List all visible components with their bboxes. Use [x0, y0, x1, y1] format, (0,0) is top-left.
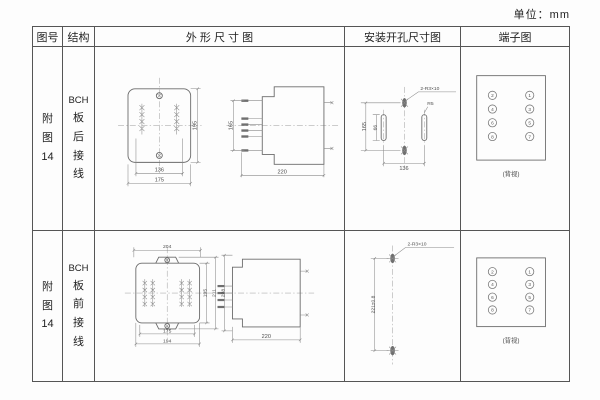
dim-slot-length: 66: [373, 125, 379, 131]
figure-char: 附: [42, 278, 53, 297]
header-mounting: 安装开孔尺寸图: [345, 27, 461, 47]
dim-front-width-outer: 175: [155, 177, 164, 183]
structure-char: 后: [73, 128, 84, 147]
structure-char: 板: [73, 277, 84, 296]
terminal-number: 7: [528, 308, 531, 313]
terminal-number: 6: [491, 295, 494, 300]
terminal-number: 3: [528, 107, 531, 112]
terminal-number: 5: [528, 295, 531, 300]
mounting-callout: 2-R3×10: [407, 242, 426, 248]
structure-char: BCH: [68, 261, 88, 277]
structure-char: 前: [73, 295, 84, 314]
dim-side-height: 165: [228, 121, 234, 130]
terminal-number: 1: [528, 269, 531, 274]
terminal-number: 8: [491, 134, 494, 139]
structure-cell-row1: BCH 板 后 接 线: [63, 47, 95, 231]
figure-char: 图: [42, 129, 53, 148]
terminal-number: 4: [491, 282, 494, 287]
terminal-pins: 2 4 6 8 1 3 5 7: [488, 91, 534, 140]
structure-char: 线: [73, 165, 84, 184]
terminal-pins: 2 4 6 8 1 3 5 7: [488, 268, 534, 315]
terminal-number: 8: [491, 308, 494, 313]
figure-char: 14: [41, 148, 53, 167]
figure-char: 图: [42, 297, 53, 316]
terminal-diagram-row1: 2 4 6 8 1 3 5 7 (背视): [461, 47, 569, 231]
dim-mounting-height: 165: [362, 122, 368, 131]
terminal-diagram-row2: 2 4 6 8 1 3 5 7 (背视): [461, 231, 569, 381]
terminal-drawing-rear: 2 4 6 8 1 3 5 7 (背视): [461, 47, 569, 230]
side-view: 165 220: [226, 87, 339, 178]
dim-front-width-outer: 194: [163, 338, 172, 344]
figure-no-cell-row1: 附 图 14: [33, 47, 63, 231]
dim-front-height: 195: [193, 121, 199, 130]
outline-diagram-row2: 204 175 194 195 211 228: [95, 231, 345, 381]
structure-char: 接: [73, 147, 84, 166]
outline-diagram-row1: 136 175 195 165 220: [95, 47, 345, 231]
mounting-drawing-rear: 165 66 2-R3×10 R5 136: [345, 47, 460, 230]
structure-char: 线: [73, 333, 84, 352]
mounting-callout: 2-R3×10: [420, 86, 439, 92]
figure-no-cell-row2: 附 图 14: [33, 231, 63, 381]
terminal-number: 2: [491, 93, 494, 98]
dim-front-width-top: 204: [163, 244, 172, 250]
dim-front-height-inner: 195: [203, 289, 209, 298]
dim-mounting-width: 136: [399, 166, 408, 172]
view-caption: (背视): [503, 335, 520, 344]
terminal-number: 6: [491, 121, 494, 126]
dim-side-height: 228: [220, 289, 226, 298]
structure-cell-row2: BCH 板 前 接 线: [63, 231, 95, 381]
manual-page: 单位：mm 图号 结构 外 形 尺 寸 图 安装开孔尺寸图 端子图 附 图 14…: [0, 0, 600, 400]
unit-label: 单位：mm: [470, 6, 570, 22]
dimension-table: 图号 结构 外 形 尺 寸 图 安装开孔尺寸图 端子图 附 图 14 BCH 板…: [32, 26, 570, 382]
front-view: 204 175 194 195 211: [125, 244, 219, 347]
mounting-drawing-front: 221±0.8 2-R3×10: [345, 231, 460, 381]
side-view: 228 220: [215, 254, 315, 343]
terminal-number: 2: [491, 269, 494, 274]
dim-front-width-inner: 175: [163, 328, 172, 334]
mounting-diagram-row1: 165 66 2-R3×10 R5 136: [345, 47, 461, 231]
dim-mounting-height: 221±0.8: [371, 295, 377, 313]
structure-char: 板: [73, 109, 84, 128]
figure-char: 14: [41, 315, 53, 334]
terminal-drawing-front: 2 4 6 8 1 3 5 7 (背视): [461, 231, 569, 381]
terminal-number: 5: [528, 121, 531, 126]
header-outline: 外 形 尺 寸 图: [95, 27, 345, 47]
header-figure-no: 图号: [33, 27, 63, 47]
terminal-number: 7: [528, 134, 531, 139]
outline-drawing-front: 204 175 194 195 211 228: [95, 231, 344, 381]
figure-char: 附: [42, 110, 53, 129]
structure-char: BCH: [68, 93, 88, 109]
terminal-number: 3: [528, 282, 531, 287]
dim-front-width-inner: 136: [155, 167, 164, 173]
dim-side-depth: 220: [262, 334, 271, 340]
mounting-diagram-row2: 221±0.8 2-R3×10: [345, 231, 461, 381]
slot-radius-label: R5: [427, 101, 434, 107]
header-structure: 结构: [63, 27, 95, 47]
terminal-number: 4: [491, 107, 494, 112]
front-view: 136 175 195: [118, 78, 202, 186]
structure-char: 接: [73, 314, 84, 333]
outline-drawing-rear: 136 175 195 165 220: [95, 47, 344, 230]
view-caption: (背视): [503, 169, 520, 178]
dim-side-depth: 220: [278, 169, 287, 175]
terminal-number: 1: [528, 93, 531, 98]
header-terminal: 端子图: [461, 27, 569, 47]
